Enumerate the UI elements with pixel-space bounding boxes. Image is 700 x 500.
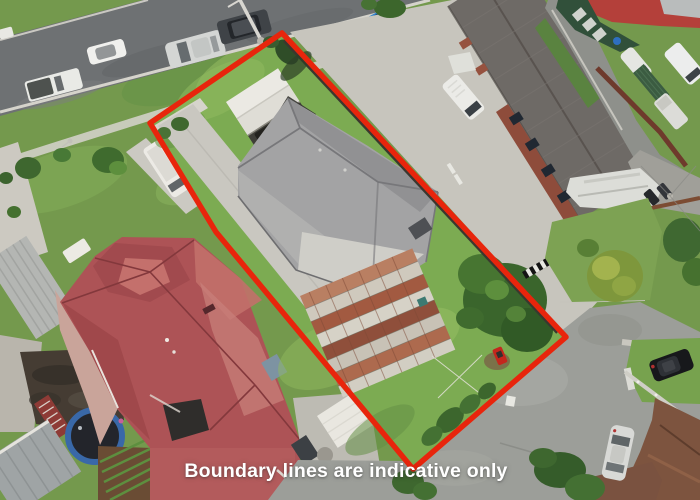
utility-box xyxy=(505,395,516,406)
aerial-photo-canvas xyxy=(0,0,700,500)
blue-barrel xyxy=(613,37,621,45)
verge-tree xyxy=(15,157,41,179)
caption: Boundary lines are indicative only xyxy=(173,461,519,482)
pink-marker xyxy=(119,419,124,424)
front-bush xyxy=(171,117,189,131)
aerial-photo: Boundary lines are indicative only xyxy=(0,0,700,500)
